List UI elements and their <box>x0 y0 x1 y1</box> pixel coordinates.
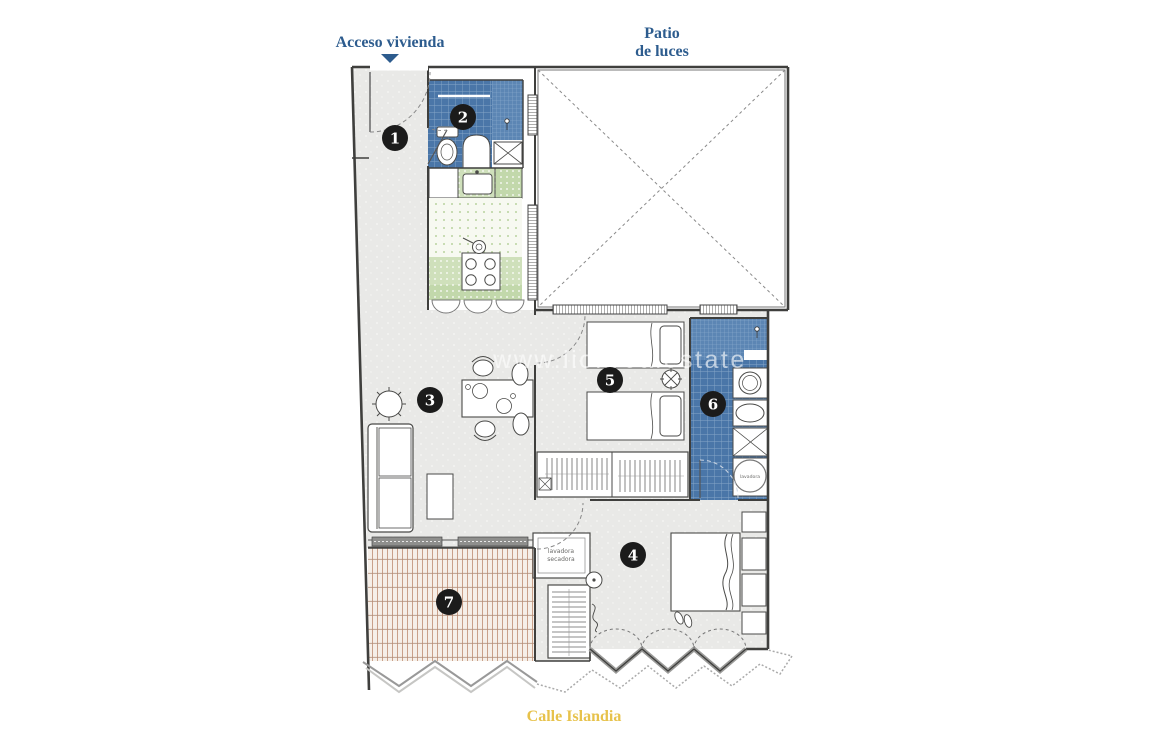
shower-tray-icon <box>733 428 768 456</box>
double-bed <box>671 533 740 611</box>
kitchen-counter-2 <box>495 168 522 198</box>
wardrobe-bedroom5 <box>537 452 688 497</box>
window-bath6 <box>700 305 737 314</box>
bar-stools <box>432 300 524 313</box>
nightstand <box>742 612 766 634</box>
nightstand <box>742 538 766 570</box>
window-bath2 <box>528 95 537 135</box>
arrow-down-icon <box>381 54 399 63</box>
label-patio-line2: de luces <box>635 43 689 60</box>
svg-text:4: 4 <box>628 547 638 565</box>
washing-machine-icon: lavadora <box>733 458 768 496</box>
bath6-shelf <box>744 350 788 360</box>
stove-icon <box>462 253 500 290</box>
shower-tray-icon <box>494 142 522 164</box>
window-bedroom5 <box>553 305 667 314</box>
room-badge-7: 7 <box>436 589 462 615</box>
laundry-label-2: secadora <box>547 556 575 563</box>
washer-label: lavadora <box>740 474 760 480</box>
label-calle-islandia: Calle Islandia <box>527 708 622 725</box>
dining-table <box>462 380 533 417</box>
bathtub-icon <box>463 135 490 168</box>
nightstand <box>742 512 766 532</box>
patio-de-luces <box>535 67 788 310</box>
window-kitchen <box>528 205 537 300</box>
room-badge-2: 2 <box>450 104 476 130</box>
bidet-icon <box>733 400 768 426</box>
svg-text:7: 7 <box>444 594 454 612</box>
wardrobe-bedroom4 <box>548 585 590 658</box>
svg-text:1: 1 <box>390 130 400 148</box>
label-acceso-vivienda: Acceso vivienda <box>336 34 445 51</box>
room-badge-1: 1 <box>382 125 408 151</box>
toilet-icon <box>437 127 458 165</box>
single-bed <box>587 392 684 440</box>
kitchen <box>428 168 524 313</box>
room-badge-5: 5 <box>597 367 623 393</box>
floor-plan: lavadora <box>0 0 1152 733</box>
laundry-closet: lavadora secadora <box>533 533 590 578</box>
nightstand <box>742 574 766 606</box>
room-badge-4: 4 <box>620 542 646 568</box>
dining-chair <box>513 413 529 435</box>
kitchen-cabinet <box>429 168 458 198</box>
svg-text:5: 5 <box>605 372 615 390</box>
bath2-shower-tiles <box>492 80 523 140</box>
plant-icon <box>372 387 406 421</box>
coffee-table <box>427 474 453 519</box>
sofa <box>368 424 413 532</box>
laundry-label-1: lavadora <box>548 548 575 555</box>
svg-text:6: 6 <box>708 396 718 414</box>
svg-text:3: 3 <box>425 392 435 410</box>
watermark: www.lionrealestate <box>492 346 746 374</box>
ceiling-light-icon <box>586 572 602 588</box>
room-badge-6: 6 <box>700 391 726 417</box>
kitchen-sink-icon <box>463 170 492 194</box>
label-patio-line1: Patio <box>644 25 680 42</box>
bathroom-2 <box>428 80 523 168</box>
svg-text:2: 2 <box>458 109 468 127</box>
room-badge-3: 3 <box>417 387 443 413</box>
